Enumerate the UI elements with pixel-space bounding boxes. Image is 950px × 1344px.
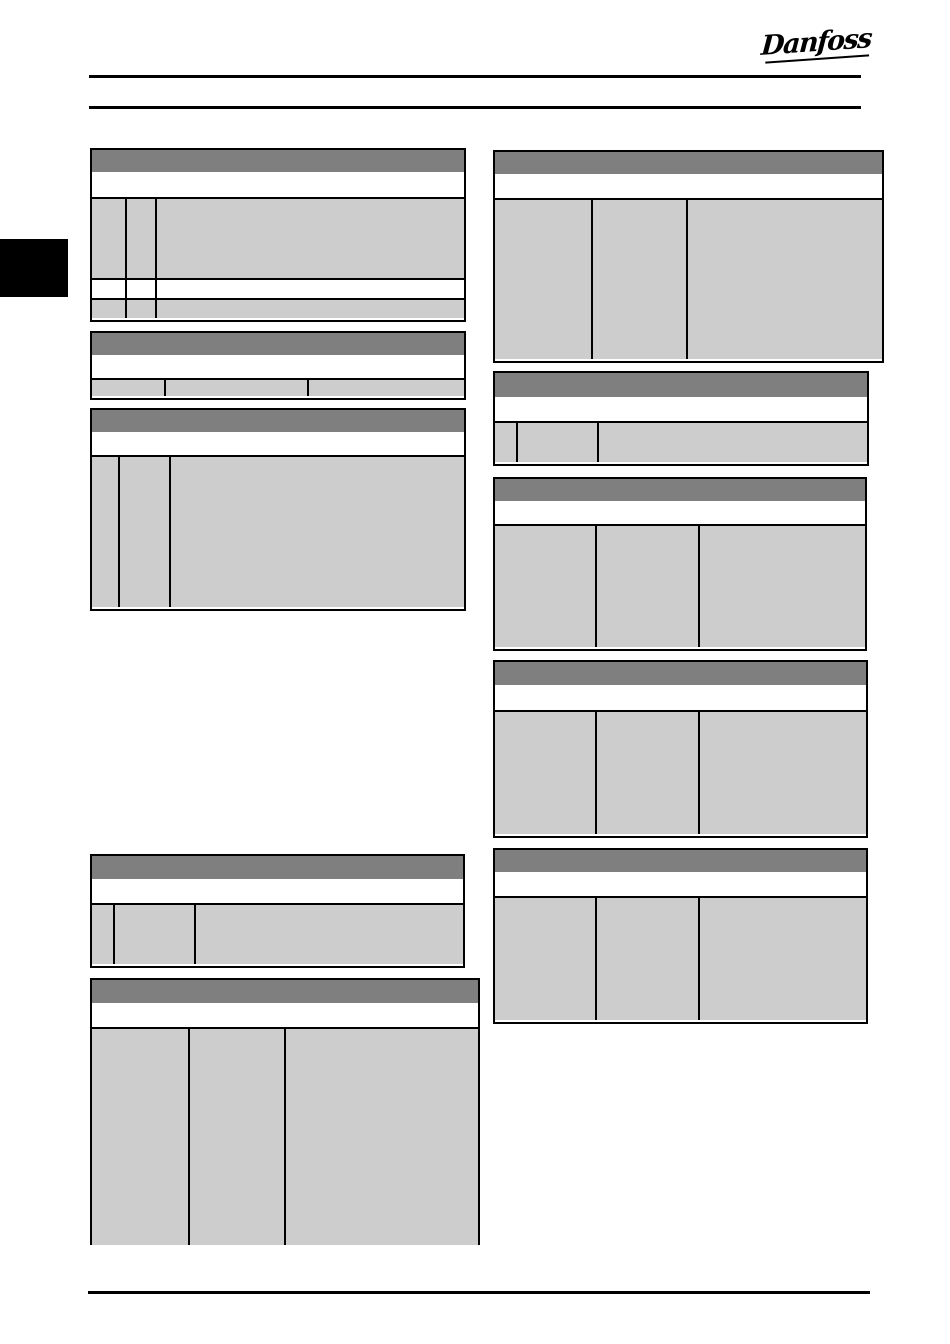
table-left-5 xyxy=(90,978,480,1245)
table-right-5-header xyxy=(495,850,866,872)
table-right-1 xyxy=(493,150,884,363)
table-left-2-body xyxy=(92,378,464,396)
chapter-edge-tab xyxy=(0,239,68,297)
table-left-5-header xyxy=(92,980,478,1003)
table-cell xyxy=(495,898,595,1020)
table-right-4 xyxy=(493,660,868,838)
table-cell xyxy=(495,526,595,647)
table-cell xyxy=(92,1029,188,1245)
table-cell xyxy=(495,712,595,834)
table-left-1-subheader xyxy=(92,172,464,197)
table-right-5-body xyxy=(495,896,866,1020)
table-left-2-subheader xyxy=(92,355,464,378)
table-row xyxy=(92,197,464,278)
table-cell xyxy=(698,898,866,1020)
table-right-4-header xyxy=(495,662,866,685)
table-right-3-body xyxy=(495,524,865,647)
table-left-3-subheader xyxy=(92,432,464,455)
table-cell xyxy=(92,199,125,278)
table-row xyxy=(495,198,882,359)
table-cell xyxy=(155,199,464,278)
table-left-4-subheader xyxy=(92,879,463,903)
table-cell xyxy=(595,898,698,1020)
footer-rule xyxy=(88,1291,870,1294)
table-cell xyxy=(169,457,464,607)
table-right-1-subheader xyxy=(495,174,882,198)
table-left-2 xyxy=(90,331,466,400)
table-row xyxy=(92,1027,478,1245)
header-rule-top xyxy=(89,75,861,78)
table-right-3 xyxy=(493,477,867,651)
table-left-4-header xyxy=(92,856,463,879)
table-left-3-header xyxy=(92,410,464,432)
table-cell xyxy=(92,905,113,964)
table-right-3-header xyxy=(495,479,865,501)
table-right-4-subheader xyxy=(495,685,866,710)
table-cell xyxy=(698,712,866,834)
table-row xyxy=(495,896,866,1020)
header-rule-bottom xyxy=(89,106,861,109)
table-cell xyxy=(194,905,463,964)
table-left-1 xyxy=(90,148,466,322)
table-cell xyxy=(164,380,307,396)
table-cell xyxy=(92,280,125,298)
table-row xyxy=(495,524,865,647)
table-right-2-subheader xyxy=(495,397,867,421)
table-cell xyxy=(125,280,155,298)
table-left-5-body xyxy=(92,1027,478,1245)
table-left-5-subheader xyxy=(92,1003,478,1027)
table-row xyxy=(92,378,464,396)
table-left-3 xyxy=(90,408,466,611)
table-cell xyxy=(92,300,125,318)
table-cell xyxy=(495,423,516,462)
table-left-1-header xyxy=(92,150,464,172)
table-row xyxy=(92,278,464,298)
table-cell xyxy=(113,905,194,964)
table-cell xyxy=(92,457,118,607)
table-row xyxy=(92,455,464,607)
table-right-2-body xyxy=(495,421,867,462)
danfoss-logo: Danfoss xyxy=(763,20,869,63)
table-cell xyxy=(118,457,169,607)
table-right-5-subheader xyxy=(495,872,866,896)
table-left-1-body xyxy=(92,197,464,318)
table-cell xyxy=(188,1029,284,1245)
table-cell xyxy=(155,300,464,318)
table-cell xyxy=(595,526,698,647)
table-cell xyxy=(92,380,164,396)
table-right-1-body xyxy=(495,198,882,359)
table-cell xyxy=(686,200,882,359)
table-left-4-body xyxy=(92,903,463,964)
page: Danfoss xyxy=(0,0,950,1344)
table-cell xyxy=(595,712,698,834)
table-row xyxy=(495,710,866,834)
table-cell xyxy=(516,423,597,462)
table-left-2-header xyxy=(92,333,464,355)
table-row xyxy=(92,298,464,318)
table-cell xyxy=(591,200,686,359)
table-row xyxy=(92,903,463,964)
table-right-2-header xyxy=(495,373,867,397)
table-cell xyxy=(125,300,155,318)
table-row xyxy=(495,421,867,462)
table-left-4 xyxy=(90,854,465,968)
table-left-3-body xyxy=(92,455,464,607)
table-cell xyxy=(125,199,155,278)
table-cell xyxy=(307,380,464,396)
table-right-4-body xyxy=(495,710,866,834)
table-right-5 xyxy=(493,848,868,1024)
table-right-1-header xyxy=(495,152,882,174)
table-right-2 xyxy=(493,371,869,466)
table-cell xyxy=(597,423,867,462)
table-right-3-subheader xyxy=(495,501,865,524)
table-cell xyxy=(155,280,464,298)
danfoss-logo-text: Danfoss xyxy=(760,24,872,62)
table-cell xyxy=(698,526,865,647)
table-cell xyxy=(284,1029,478,1245)
table-cell xyxy=(495,200,591,359)
